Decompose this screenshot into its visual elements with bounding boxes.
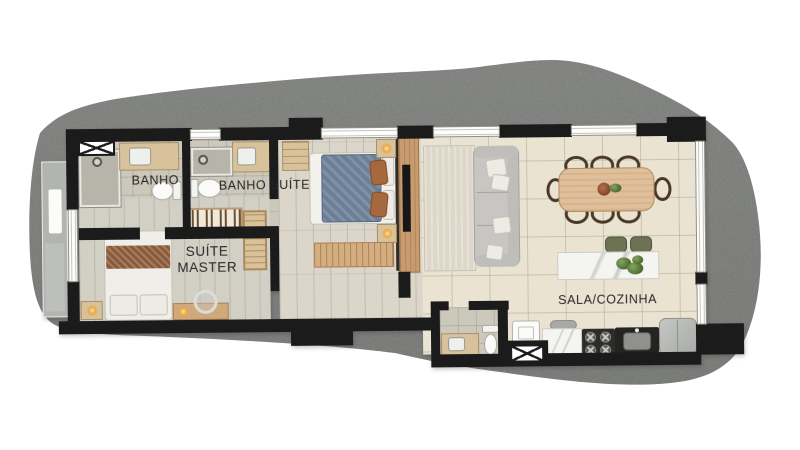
label-bath2: BANHO SUÍTE (214, 178, 314, 194)
wall-lavabo-left (431, 301, 441, 363)
centerpiece-bowl (597, 183, 610, 196)
wall-left (66, 129, 79, 210)
shower-head-icon (92, 157, 102, 167)
island-herbs (632, 255, 643, 264)
shaft-box-icon (78, 140, 115, 156)
island-stool (630, 236, 652, 252)
window-top-suite (321, 127, 398, 139)
burner-icon (585, 332, 596, 343)
wall-top (219, 127, 292, 141)
window-right-living2 (696, 284, 706, 325)
wall-top (397, 125, 434, 138)
wall-bath1-bottom (79, 228, 140, 241)
apartment-plan: BANHO BANHO SUÍTE SUÍTE MASTER SALA/COZI… (0, 0, 800, 450)
wall-left (67, 281, 80, 334)
lamp-icon (381, 143, 392, 154)
pillow (140, 294, 168, 315)
kitchen-island (557, 251, 659, 280)
wall-bottom (59, 317, 436, 334)
island-stool (605, 236, 627, 252)
centerpiece-plant (609, 183, 621, 192)
wall-top (636, 123, 669, 136)
window-left-master (68, 209, 79, 282)
sink-bath1 (129, 147, 151, 165)
shower-bath2 (191, 148, 232, 176)
label-master-suite-line1: SUÍTE (160, 243, 254, 260)
ac-unit (47, 188, 62, 234)
wall-bedroom-divider (270, 226, 280, 291)
pillow (485, 244, 504, 261)
pillow-brown (369, 159, 389, 186)
pillow (492, 216, 512, 235)
wall-bottom-step (291, 318, 353, 346)
lamp-icon (178, 306, 189, 317)
lamp-icon (87, 305, 98, 316)
wall-tv-stub (398, 272, 410, 298)
label-bath1: BANHO (125, 173, 185, 189)
window-top-living2 (571, 124, 637, 136)
lamp-icon (382, 228, 393, 239)
label-master-suite-line2: MASTER (160, 259, 254, 276)
sink-bath2 (237, 147, 256, 165)
window-right-living1 (695, 141, 706, 273)
faucet-icon (635, 328, 639, 332)
window-top-living1 (433, 126, 500, 138)
pillow (110, 295, 138, 316)
pillow-brown (369, 191, 388, 217)
wall-lavabo-top (431, 301, 449, 310)
shaft-box-icon (510, 344, 544, 362)
wall-top (499, 124, 572, 138)
dining-chair (653, 177, 671, 201)
burner-icon (600, 332, 611, 343)
window-top-bath (190, 129, 221, 140)
pillow (490, 173, 510, 192)
round-mirror (194, 290, 218, 314)
rug (423, 145, 476, 272)
ledge-panel (45, 243, 65, 311)
wardrobe-suite (282, 141, 309, 171)
wall-top-step (289, 118, 323, 140)
laundry-basin-inner (518, 326, 534, 339)
wall-bath2-bottom (191, 226, 279, 239)
wall-bottom-kitchen (431, 352, 701, 368)
wall-corner-bottomright (696, 323, 744, 355)
shower-head-icon (198, 155, 208, 165)
toilet-bowl-lavabo (484, 334, 497, 355)
wall-corner-topright (667, 117, 706, 142)
sofa-armrest (474, 146, 518, 158)
wall-bath1-bottom (165, 227, 191, 239)
sofa-backrest (507, 150, 519, 263)
sink-lavabo (448, 337, 465, 351)
dresser-suite (314, 242, 394, 268)
toilet-tank-lavabo (482, 325, 499, 333)
floor-plan-scene: BANHO BANHO SUÍTE SUÍTE MASTER SALA/COZI… (0, 0, 800, 450)
tv-icon (402, 165, 411, 232)
kitchen-sink (623, 332, 651, 350)
label-living-kitchen: SALA/COZINHA (554, 292, 662, 308)
